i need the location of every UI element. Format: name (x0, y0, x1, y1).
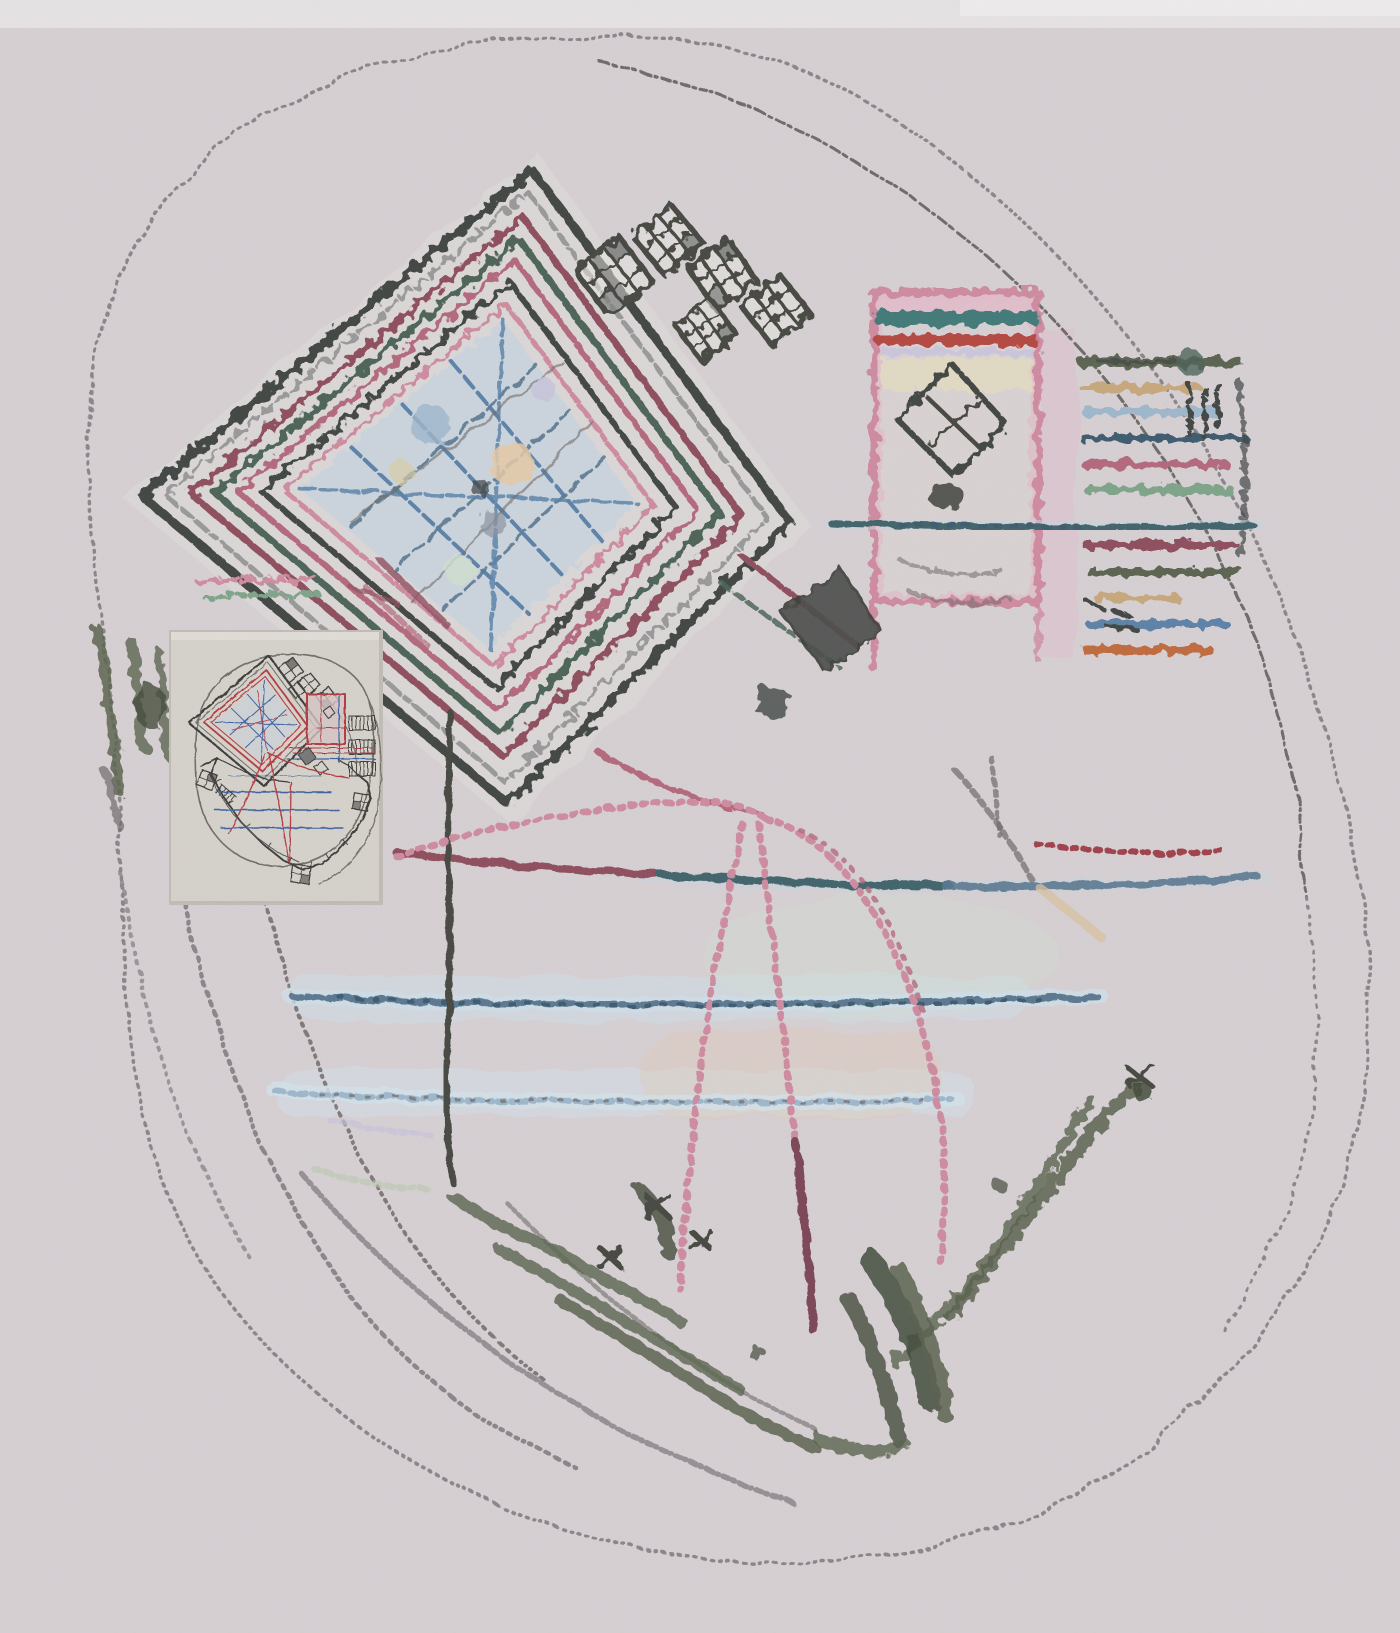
photographed-sketch (0, 0, 1400, 1633)
sketch-canvas (0, 0, 1400, 1633)
paper-grain-overlay (0, 0, 1400, 1633)
